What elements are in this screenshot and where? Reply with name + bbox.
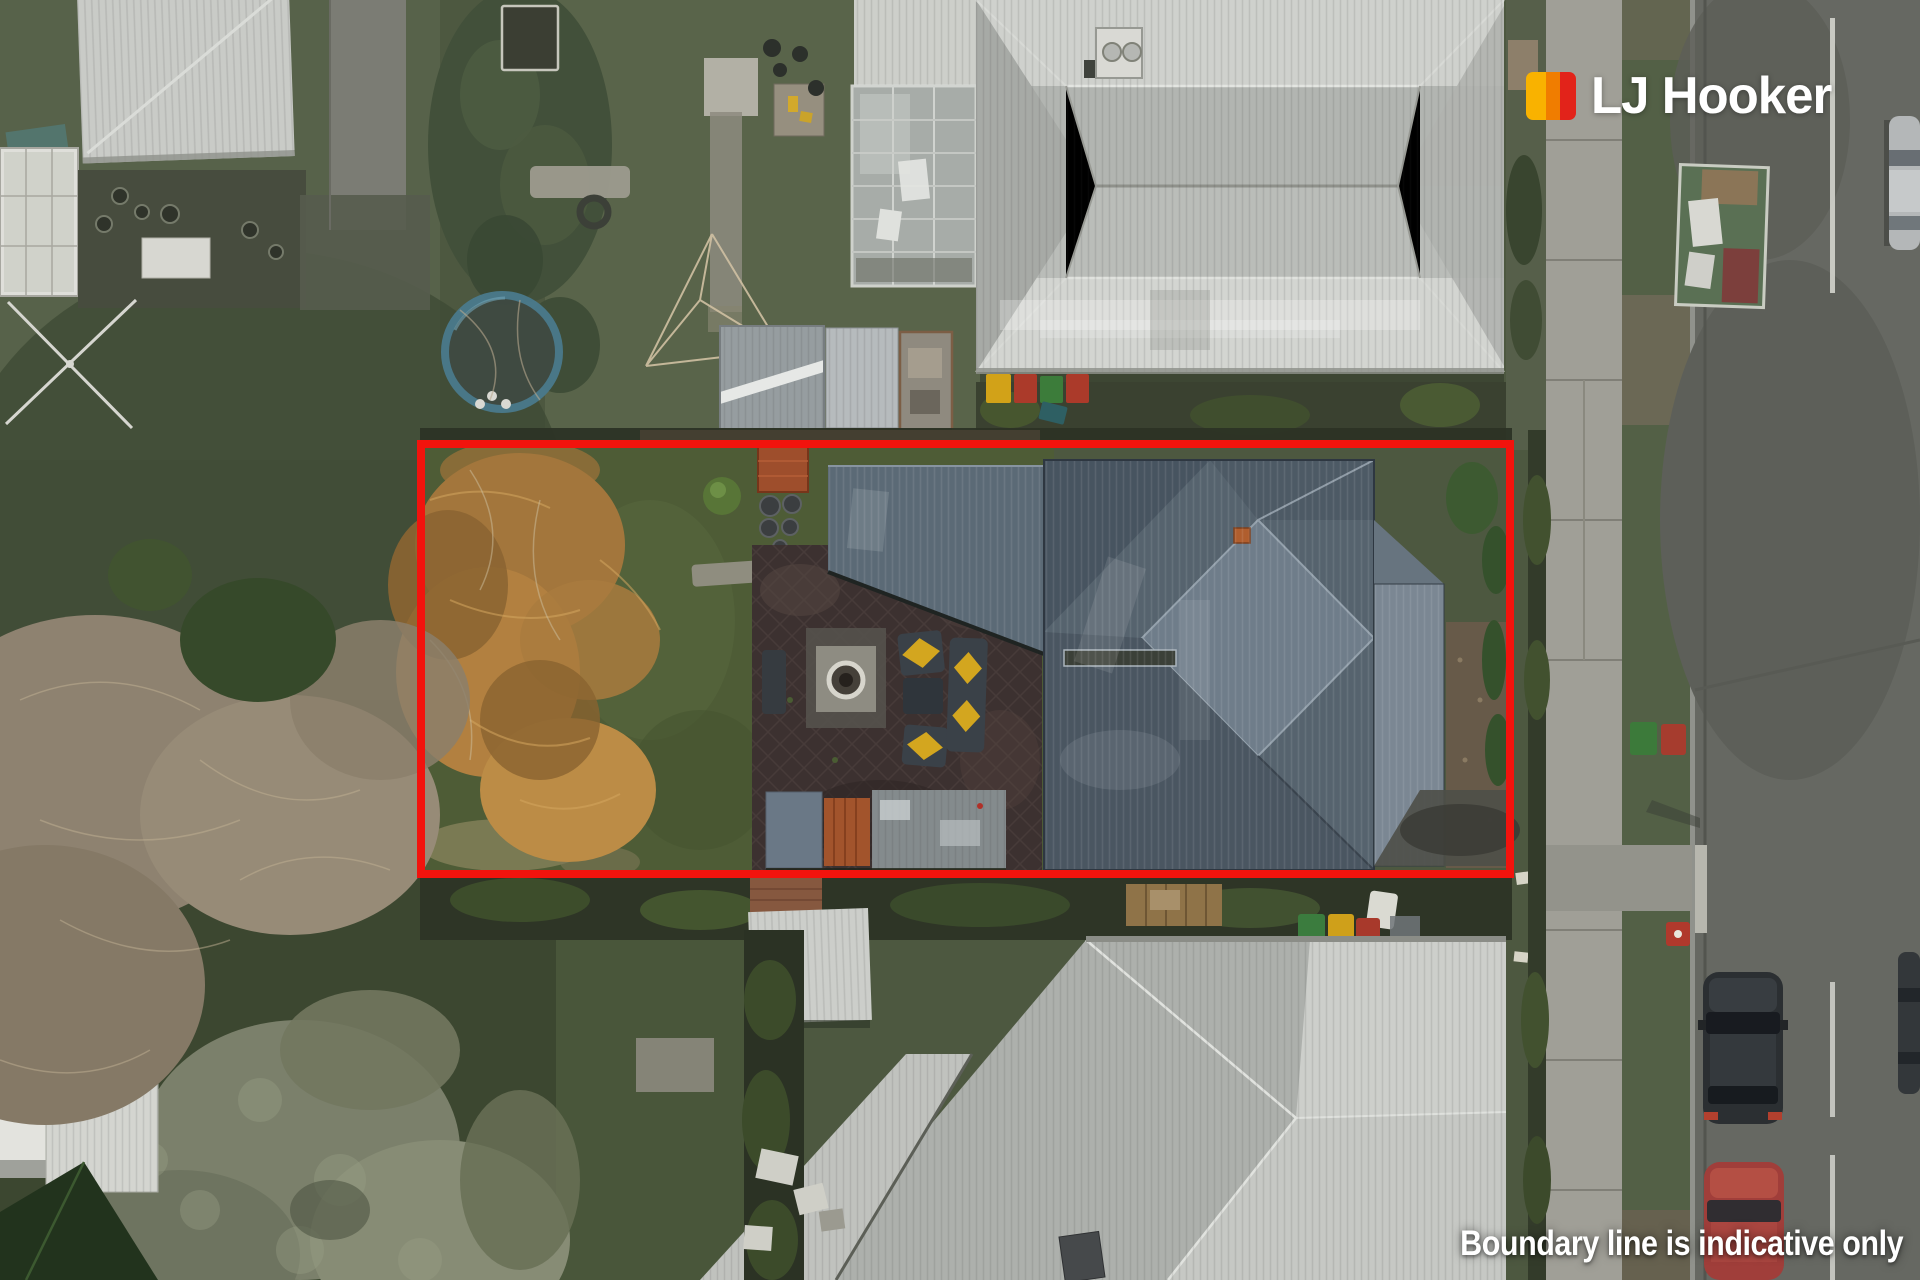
logo-stripe-orange: [1546, 72, 1560, 120]
north-garden-strip-east: [1506, 0, 1546, 450]
ljhooker-logo-mark: [1526, 72, 1576, 120]
paddling-pool: [445, 295, 559, 409]
timber-planter: [758, 446, 808, 492]
footpath: [1546, 0, 1622, 1280]
north-house-roof: [976, 0, 1504, 384]
fire-pit: [806, 628, 886, 728]
neighbour-conservatory: [0, 124, 78, 296]
raised-garden-bed: [502, 6, 558, 70]
driveway-crossing: [1546, 845, 1692, 911]
neighbour-house-top-left: [76, 0, 295, 163]
parked-car-dark: [1898, 952, 1920, 1094]
boundary-disclaimer: Boundary line is indicative only: [1460, 1224, 1903, 1264]
garden-sheds: [720, 326, 952, 438]
skip-bin: [1676, 165, 1769, 308]
ljhooker-logo-text: LJ Hooker: [1591, 70, 1831, 122]
ljhooker-logo: LJ Hooker: [1526, 70, 1836, 122]
backyard-sheds-row: [766, 790, 1006, 874]
parked-car-black: [1698, 972, 1788, 1124]
aerial-photo-scene: [0, 0, 1920, 1280]
logo-stripe-yellow: [1526, 72, 1546, 120]
logo-stripe-red: [1560, 72, 1576, 120]
aerial-photo: LJ Hooker Boundary line is indicative on…: [0, 0, 1920, 1280]
neighbour-garden: [78, 170, 306, 308]
garden-shrub: [703, 477, 741, 515]
parked-car-silver: [1884, 116, 1920, 250]
